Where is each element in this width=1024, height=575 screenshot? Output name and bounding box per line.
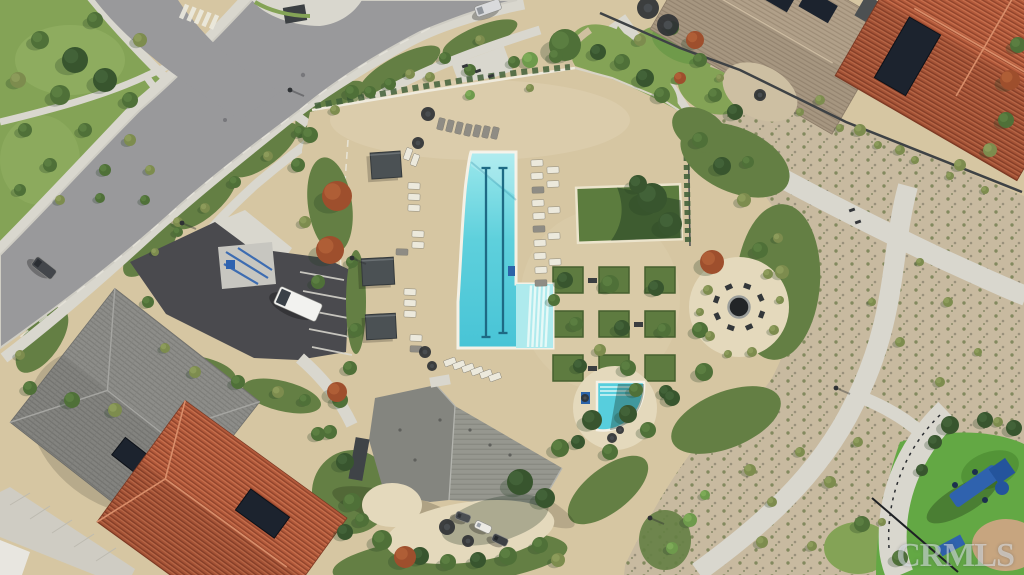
lounge-chair	[533, 213, 545, 220]
lounge-chair	[404, 300, 416, 307]
lounge-chair	[549, 259, 561, 266]
lounge-chair	[547, 181, 559, 188]
furniture-set	[581, 394, 589, 402]
lounge-chair	[396, 249, 408, 256]
furniture-set	[462, 535, 474, 547]
lounge-chair	[412, 231, 424, 238]
aerial-scene	[0, 0, 1024, 575]
bbq-grill	[634, 322, 643, 327]
planter-bed	[645, 355, 675, 381]
bbq-grill	[588, 278, 597, 283]
cabana	[361, 313, 396, 343]
lounge-chair	[535, 267, 547, 274]
furniture-set	[427, 361, 437, 371]
bbq-grill	[588, 366, 597, 371]
lounge-chair	[408, 205, 420, 212]
furniture-set	[412, 137, 424, 149]
lounge-chair	[547, 167, 559, 174]
lounge-chair	[535, 280, 547, 287]
lounge-chair	[531, 160, 543, 167]
furniture-set	[607, 433, 617, 443]
furniture-set	[419, 346, 431, 358]
lounge-chair	[533, 226, 545, 233]
lounge-chair	[534, 240, 546, 247]
lounge-chair	[532, 200, 544, 207]
aerial-photo: CRMLS	[0, 0, 1024, 575]
lounge-chair	[548, 207, 560, 214]
furniture-set	[616, 426, 624, 434]
lounge-chair	[534, 253, 546, 260]
lounge-chair	[408, 194, 420, 201]
crmls-watermark: CRMLS	[896, 537, 1014, 575]
furniture-set	[657, 14, 679, 36]
furniture-set	[421, 107, 435, 121]
lounge-chair	[532, 187, 544, 194]
lounge-chair	[410, 335, 422, 342]
lounge-chair	[548, 233, 560, 240]
cabana	[366, 151, 402, 182]
lounge-chair	[531, 173, 543, 180]
lounge-chair	[412, 242, 424, 249]
lounge-chair	[404, 311, 416, 318]
pool-lift	[508, 266, 515, 276]
furniture-set	[754, 89, 766, 101]
lounge-chair	[404, 289, 416, 296]
lounge-chair	[408, 183, 420, 190]
